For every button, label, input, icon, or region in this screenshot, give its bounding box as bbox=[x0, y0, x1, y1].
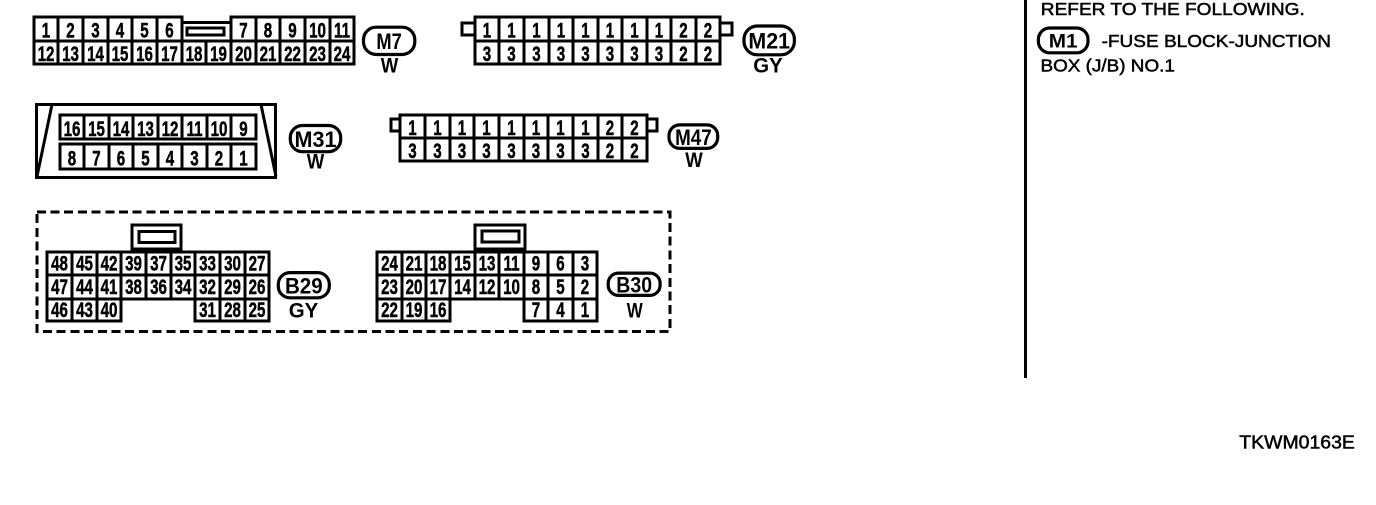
svg-text:28: 28 bbox=[224, 297, 241, 321]
svg-text:16: 16 bbox=[430, 297, 447, 321]
svg-text:20: 20 bbox=[235, 41, 252, 65]
svg-text:W: W bbox=[307, 151, 325, 174]
svg-text:2: 2 bbox=[606, 138, 614, 162]
svg-text:M21: M21 bbox=[748, 29, 790, 54]
svg-text:12: 12 bbox=[38, 41, 55, 65]
svg-text:3: 3 bbox=[433, 138, 441, 162]
svg-text:11: 11 bbox=[187, 116, 203, 140]
svg-text:1: 1 bbox=[581, 18, 589, 42]
svg-text:5: 5 bbox=[141, 146, 149, 170]
svg-text:4: 4 bbox=[556, 297, 565, 321]
svg-text:16: 16 bbox=[136, 41, 153, 65]
svg-text:23: 23 bbox=[309, 41, 326, 65]
svg-text:11: 11 bbox=[504, 251, 520, 275]
svg-text:W: W bbox=[685, 149, 703, 172]
svg-text:30: 30 bbox=[224, 251, 241, 275]
svg-text:9: 9 bbox=[239, 116, 247, 140]
svg-text:1: 1 bbox=[483, 18, 491, 42]
svg-text:-FUSE BLOCK-JUNCTION: -FUSE BLOCK-JUNCTION bbox=[1102, 31, 1331, 51]
svg-text:29: 29 bbox=[224, 274, 241, 298]
svg-text:2: 2 bbox=[581, 274, 589, 298]
svg-text:GY: GY bbox=[289, 299, 319, 322]
svg-text:1: 1 bbox=[581, 297, 589, 321]
svg-text:39: 39 bbox=[125, 251, 142, 275]
svg-text:3: 3 bbox=[557, 41, 565, 65]
svg-text:7: 7 bbox=[532, 297, 540, 321]
svg-text:18: 18 bbox=[186, 41, 203, 65]
svg-text:47: 47 bbox=[51, 274, 68, 298]
svg-text:3: 3 bbox=[190, 146, 198, 170]
svg-text:3: 3 bbox=[556, 138, 564, 162]
svg-text:12: 12 bbox=[479, 274, 496, 298]
svg-text:2: 2 bbox=[215, 146, 223, 170]
svg-text:3: 3 bbox=[507, 138, 515, 162]
svg-text:1: 1 bbox=[408, 115, 416, 139]
svg-text:43: 43 bbox=[76, 297, 93, 321]
svg-text:48: 48 bbox=[51, 251, 68, 275]
svg-text:3: 3 bbox=[606, 41, 614, 65]
svg-text:21: 21 bbox=[406, 251, 423, 275]
svg-text:GY: GY bbox=[753, 54, 783, 77]
svg-text:12: 12 bbox=[162, 116, 179, 140]
svg-text:2: 2 bbox=[66, 18, 74, 42]
svg-text:1: 1 bbox=[482, 115, 490, 139]
svg-text:11: 11 bbox=[334, 18, 350, 42]
svg-text:14: 14 bbox=[113, 116, 130, 140]
svg-text:2: 2 bbox=[704, 41, 712, 65]
svg-text:W: W bbox=[627, 300, 643, 323]
svg-text:17: 17 bbox=[161, 41, 178, 65]
svg-text:27: 27 bbox=[249, 251, 266, 275]
svg-text:38: 38 bbox=[125, 274, 142, 298]
svg-text:32: 32 bbox=[199, 274, 216, 298]
svg-text:24: 24 bbox=[381, 251, 398, 275]
svg-text:1: 1 bbox=[507, 18, 515, 42]
svg-text:23: 23 bbox=[381, 274, 398, 298]
svg-text:3: 3 bbox=[458, 138, 466, 162]
svg-text:14: 14 bbox=[87, 41, 104, 65]
svg-text:1: 1 bbox=[532, 115, 540, 139]
svg-text:1: 1 bbox=[630, 18, 638, 42]
svg-text:3: 3 bbox=[581, 41, 589, 65]
svg-text:1: 1 bbox=[239, 146, 247, 170]
svg-text:14: 14 bbox=[454, 274, 471, 298]
svg-text:46: 46 bbox=[51, 297, 68, 321]
svg-text:6: 6 bbox=[117, 146, 125, 170]
svg-text:7: 7 bbox=[239, 18, 247, 42]
svg-text:3: 3 bbox=[408, 138, 416, 162]
svg-text:15: 15 bbox=[88, 116, 105, 140]
svg-text:W: W bbox=[381, 55, 399, 78]
svg-text:33: 33 bbox=[199, 251, 216, 275]
svg-text:1: 1 bbox=[507, 115, 515, 139]
svg-text:4: 4 bbox=[166, 146, 175, 170]
svg-text:B29: B29 bbox=[285, 274, 323, 299]
svg-text:3: 3 bbox=[655, 41, 663, 65]
svg-text:8: 8 bbox=[532, 274, 540, 298]
svg-text:B30: B30 bbox=[616, 273, 652, 298]
svg-text:BOX (J/B) NO.1: BOX (J/B) NO.1 bbox=[1041, 55, 1175, 75]
svg-text:8: 8 bbox=[264, 18, 272, 42]
svg-text:3: 3 bbox=[581, 251, 589, 275]
svg-text:22: 22 bbox=[284, 41, 301, 65]
svg-text:45: 45 bbox=[76, 251, 93, 275]
svg-text:15: 15 bbox=[454, 251, 471, 275]
svg-text:26: 26 bbox=[249, 274, 266, 298]
svg-text:2: 2 bbox=[606, 115, 614, 139]
svg-text:M47: M47 bbox=[675, 125, 712, 150]
svg-text:1: 1 bbox=[532, 18, 540, 42]
svg-text:4: 4 bbox=[116, 18, 125, 42]
svg-text:44: 44 bbox=[76, 274, 93, 298]
svg-text:18: 18 bbox=[430, 251, 447, 275]
svg-text:1: 1 bbox=[581, 115, 589, 139]
svg-text:35: 35 bbox=[175, 251, 192, 275]
svg-text:1: 1 bbox=[655, 18, 663, 42]
svg-text:22: 22 bbox=[381, 297, 398, 321]
svg-text:2: 2 bbox=[679, 18, 687, 42]
svg-text:19: 19 bbox=[406, 297, 423, 321]
svg-text:40: 40 bbox=[101, 297, 118, 321]
svg-text:15: 15 bbox=[112, 41, 129, 65]
svg-text:M1: M1 bbox=[1049, 32, 1078, 53]
svg-text:41: 41 bbox=[101, 274, 118, 298]
svg-text:3: 3 bbox=[482, 138, 490, 162]
svg-text:5: 5 bbox=[556, 274, 564, 298]
svg-text:10: 10 bbox=[309, 18, 326, 42]
svg-text:31: 31 bbox=[199, 297, 216, 321]
svg-text:8: 8 bbox=[68, 146, 76, 170]
svg-text:3: 3 bbox=[483, 41, 491, 65]
svg-text:1: 1 bbox=[42, 18, 50, 42]
svg-text:13: 13 bbox=[62, 41, 79, 65]
svg-text:9: 9 bbox=[288, 18, 296, 42]
svg-text:13: 13 bbox=[479, 251, 496, 275]
svg-text:7: 7 bbox=[92, 146, 100, 170]
svg-text:9: 9 bbox=[532, 251, 540, 275]
svg-text:2: 2 bbox=[679, 41, 687, 65]
svg-text:13: 13 bbox=[137, 116, 154, 140]
svg-text:3: 3 bbox=[91, 18, 99, 42]
svg-text:2: 2 bbox=[630, 115, 638, 139]
svg-text:6: 6 bbox=[165, 18, 173, 42]
svg-text:20: 20 bbox=[406, 274, 423, 298]
svg-text:M31: M31 bbox=[295, 127, 337, 152]
svg-text:2: 2 bbox=[630, 138, 638, 162]
svg-text:1: 1 bbox=[556, 115, 564, 139]
svg-text:24: 24 bbox=[334, 41, 351, 65]
svg-text:42: 42 bbox=[101, 251, 118, 275]
svg-text:17: 17 bbox=[430, 274, 447, 298]
svg-text:3: 3 bbox=[630, 41, 638, 65]
svg-text:10: 10 bbox=[211, 116, 228, 140]
svg-text:3: 3 bbox=[507, 41, 515, 65]
svg-text:21: 21 bbox=[260, 41, 277, 65]
svg-text:37: 37 bbox=[150, 251, 167, 275]
svg-text:1: 1 bbox=[557, 18, 565, 42]
svg-text:34: 34 bbox=[175, 274, 192, 298]
svg-text:19: 19 bbox=[210, 41, 227, 65]
svg-text:36: 36 bbox=[150, 274, 167, 298]
svg-text:TKWM0163E: TKWM0163E bbox=[1239, 431, 1355, 452]
svg-text:6: 6 bbox=[556, 251, 564, 275]
svg-text:M7: M7 bbox=[376, 29, 401, 54]
svg-text:2: 2 bbox=[704, 18, 712, 42]
svg-text:REFER TO THE FOLLOWING.: REFER TO THE FOLLOWING. bbox=[1041, 0, 1305, 19]
svg-text:10: 10 bbox=[503, 274, 520, 298]
svg-text:3: 3 bbox=[532, 41, 540, 65]
svg-text:25: 25 bbox=[249, 297, 266, 321]
svg-text:1: 1 bbox=[458, 115, 466, 139]
svg-text:5: 5 bbox=[140, 18, 148, 42]
svg-text:1: 1 bbox=[433, 115, 441, 139]
svg-text:3: 3 bbox=[581, 138, 589, 162]
svg-text:3: 3 bbox=[532, 138, 540, 162]
svg-text:1: 1 bbox=[606, 18, 614, 42]
svg-text:16: 16 bbox=[64, 116, 81, 140]
